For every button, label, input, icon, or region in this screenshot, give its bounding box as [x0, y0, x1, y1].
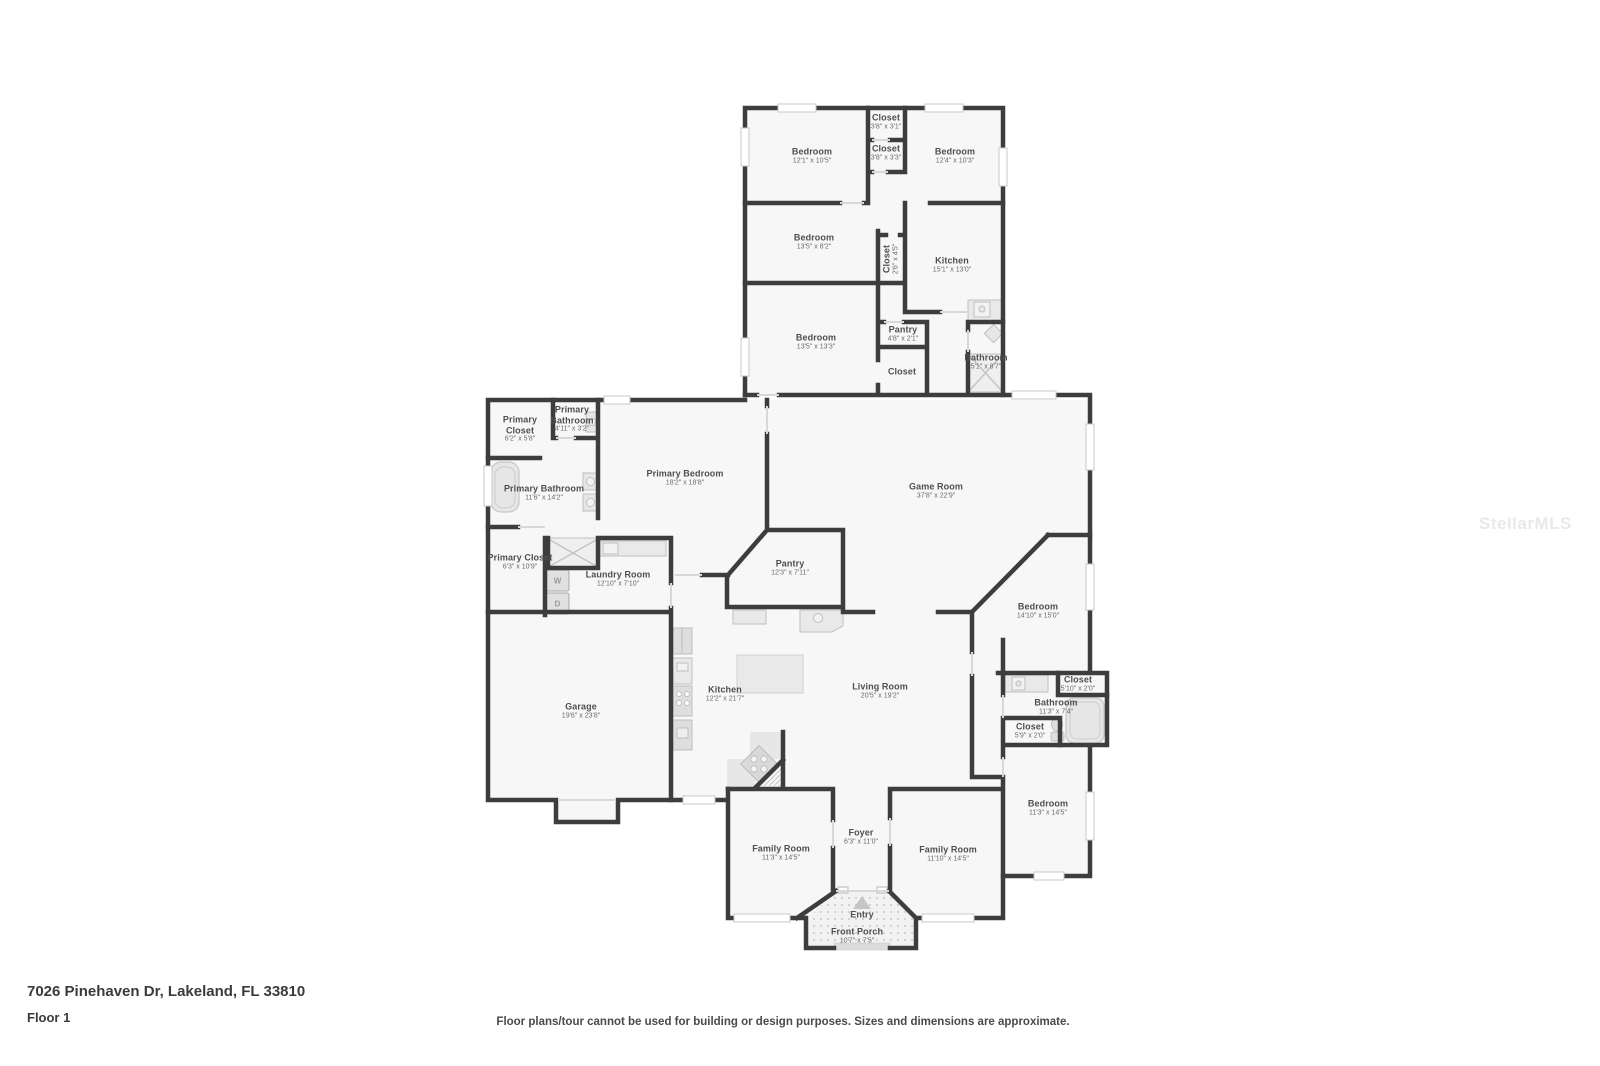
room-label-foyer: Foyer 6'3" x 11'0"	[844, 828, 878, 847]
room-label-laundry-room: Laundry Room 12'10" x 7'10"	[586, 570, 651, 589]
room-label-primary-closet-1: Primary Closet 6'2" x 5'8"	[492, 414, 548, 443]
room-label-primary-closet-2: Primary Closet 6'3" x 10'9"	[488, 553, 553, 572]
washer-label: W	[554, 576, 562, 585]
room-label-closet-upper-3: Closet	[888, 367, 916, 378]
room-label-primary-bedroom: Primary Bedroom 18'2" x 18'8"	[646, 469, 723, 488]
disclaimer-text: Floor plans/tour cannot be used for buil…	[496, 1016, 1069, 1028]
room-label-front-porch: Front Porch 10'7" x 7'5"	[831, 927, 883, 946]
room-label-family-room-left: Family Room 11'3" x 14'5"	[752, 844, 810, 863]
address-title: 7026 Pinehaven Dr, Lakeland, FL 33810	[27, 983, 305, 1000]
room-label-closet-top-1: Closet 3'8" x 3'1"	[871, 113, 902, 132]
room-label-primary-bathroom: Primary Bathroom 11'6" x 14'2"	[504, 484, 584, 503]
watermark: StellarMLS	[1479, 514, 1572, 534]
room-label-pantry-upper: Pantry 4'8" x 2'1"	[888, 325, 919, 344]
room-label-closet-top-2: Closet 3'8" x 3'3"	[871, 144, 902, 163]
dryer-label: D	[555, 599, 561, 608]
room-label-bedroom-right-2: Bedroom 11'3" x 14'5"	[1028, 799, 1068, 818]
room-label-kitchen-main: Kitchen 12'2" x 21'7"	[706, 685, 744, 704]
room-label-kitchen-upper: Kitchen 15'1" x 13'0"	[933, 256, 971, 275]
room-label-bedroom-top-left: Bedroom 12'1" x 10'5"	[792, 147, 832, 166]
floor-plan-page: Bedroom 12'1" x 10'5" Closet 3'8" x 3'1"…	[0, 0, 1600, 1066]
room-label-living-room: Living Room 20'5" x 19'2"	[852, 682, 908, 701]
room-label-entry: Entry	[850, 910, 874, 921]
room-label-bedroom-right-1: Bedroom 14'10" x 15'0"	[1017, 602, 1059, 621]
room-label-bedroom-mid-left: Bedroom 13'5" x 8'2"	[794, 233, 834, 252]
room-label-bathroom-right: Bathroom 11'3" x 7'4"	[1034, 698, 1077, 717]
room-label-game-room: Game Room 37'8" x 22'9"	[909, 482, 963, 501]
room-label-family-room-right: Family Room 11'10" x 14'5"	[919, 845, 977, 864]
room-label-bedroom-lower-left: Bedroom 13'5" x 13'3"	[796, 333, 836, 352]
floor-label: Floor 1	[27, 1010, 70, 1025]
room-label-primary-bathroom-wc: Primary Bathroom 4'11" x 3'2"	[544, 404, 600, 433]
room-label-closet-right-2: Closet 5'9" x 2'0"	[1015, 722, 1046, 741]
room-label-bathroom-upper: Bathroom 5'1" x 8'7"	[964, 353, 1007, 372]
room-label-garage: Garage 19'6" x 23'8"	[562, 702, 600, 721]
room-label-closet-vertical: Closet 2'6" x 4'5"	[882, 244, 901, 275]
room-label-closet-right-1: Closet 5'10" x 2'0"	[1061, 675, 1096, 694]
room-label-bedroom-top-right: Bedroom 12'4" x 10'3"	[935, 147, 975, 166]
room-label-pantry-main: Pantry 12'3" x 7'11"	[771, 559, 809, 578]
